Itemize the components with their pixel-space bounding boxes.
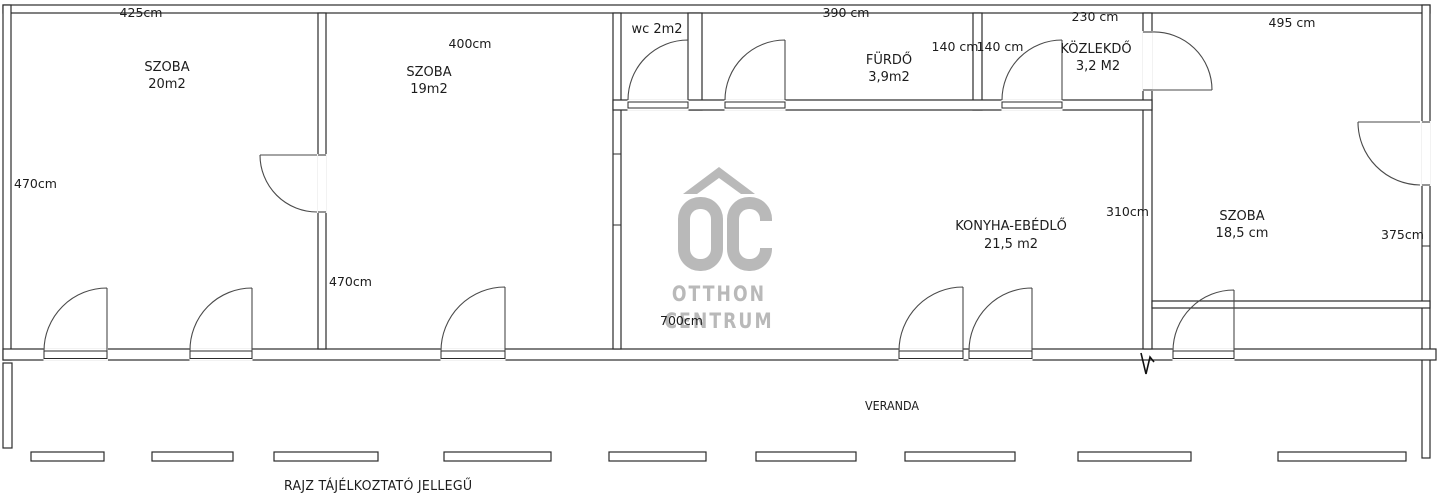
veranda-post [609, 452, 706, 461]
watermark-line1: OTTHON [672, 282, 766, 306]
otthon-centrum-logo-icon [678, 167, 774, 271]
room-label-furdo: FÜRDŐ [866, 54, 912, 68]
door-konyha-a [899, 287, 963, 351]
door-szoba3-entry [1152, 32, 1212, 90]
floor-plan-drawing [0, 0, 1437, 500]
disclaimer-text: RAJZ TÁJÉLKOZTATÓ JELLEGŰ [284, 479, 472, 494]
dim-kozlekdo-top: 230 cm [1072, 10, 1119, 24]
door-szoba1-a [44, 288, 107, 351]
dim-szoba1-left: 470cm [14, 177, 57, 191]
room-area-furdo: 3,9m2 [868, 71, 910, 85]
room-label-konyha: KONYHA-EBÉDLŐ [955, 220, 1067, 234]
door-szoba3-bottom [1173, 290, 1234, 351]
veranda-post [1278, 452, 1406, 461]
door-szoba1-b [190, 288, 252, 351]
veranda-post [444, 452, 551, 461]
veranda-post [274, 452, 378, 461]
door-wc [628, 40, 688, 100]
room-area-szoba2: 19m2 [410, 83, 447, 97]
room-label-kozlekdo: KÖZLEKDŐ [1060, 43, 1131, 57]
room-label-szoba2: SZOBA [406, 66, 451, 80]
dim-szoba3-right: 375cm [1381, 228, 1424, 242]
room-label-veranda: VERANDA [865, 400, 919, 413]
room-area-konyha: 21,5 m2 [984, 238, 1038, 252]
dim-140-left: 140 cm [932, 40, 979, 54]
door-konyha-b [969, 288, 1032, 351]
door-szoba3-right [1358, 122, 1420, 185]
room-label-szoba3: SZOBA [1219, 210, 1264, 224]
veranda-post [3, 363, 12, 448]
dim-szoba1-top: 425cm [120, 6, 163, 20]
floor-plan: OTTHON CENTRUM SZOBA 20m2 425cm 470cm SZ… [0, 0, 1437, 500]
door-szoba1-szoba2 [260, 155, 317, 212]
room-label-szoba1: SZOBA [144, 61, 189, 75]
dim-szoba2-top: 400cm [449, 37, 492, 51]
dim-furdo-top: 390 cm [823, 6, 870, 20]
dim-140-right: 140 cm [977, 40, 1024, 54]
veranda-post [905, 452, 1015, 461]
dim-szoba3-top: 495 cm [1269, 16, 1316, 30]
veranda-post [152, 452, 233, 461]
room-area-szoba1: 20m2 [148, 78, 185, 92]
veranda-posts [3, 363, 1406, 461]
door-szoba2 [441, 287, 505, 351]
veranda-post [756, 452, 856, 461]
dim-szoba2-left: 470cm [329, 275, 372, 289]
door-furdo [725, 40, 785, 100]
dim-konyha-right: 310cm [1106, 205, 1149, 219]
room-label-wc: wc 2m2 [631, 23, 682, 37]
room-area-szoba3: 18,5 cm [1216, 227, 1269, 241]
dim-konyha-bottom: 700cm [660, 314, 703, 328]
veranda-post [1078, 452, 1191, 461]
veranda-post [31, 452, 104, 461]
room-area-kozlekdo: 3,2 M2 [1076, 60, 1120, 74]
